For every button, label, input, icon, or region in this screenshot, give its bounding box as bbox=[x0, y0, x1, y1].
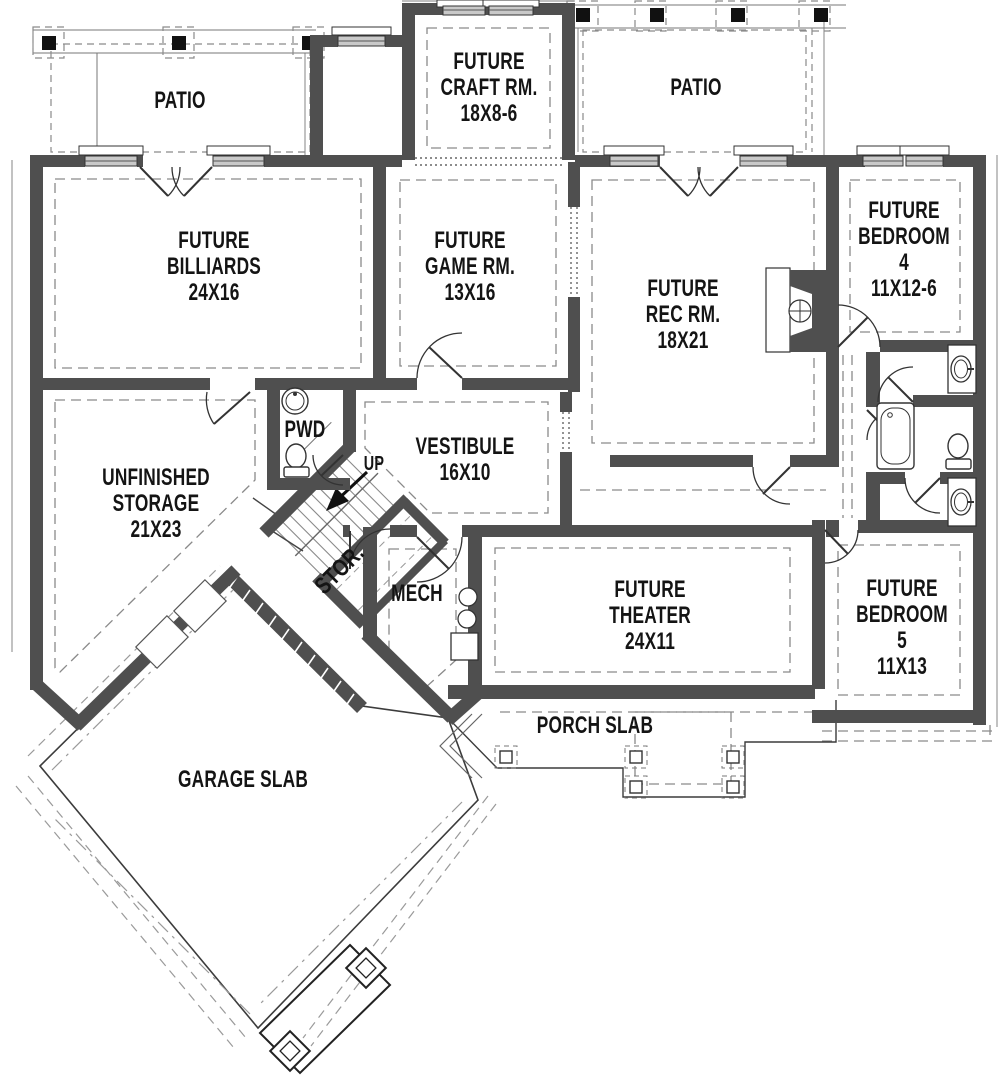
bathtub-icon bbox=[877, 403, 914, 469]
room-label-powder-room: PWD bbox=[285, 417, 326, 443]
floorplan-page: PATIO FUTURE CRAFT RM. 18X8-6 PATIO FUTU… bbox=[0, 0, 1000, 1075]
room-label-garage-slab: GARAGE SLAB bbox=[178, 767, 308, 793]
room-label-storage: UNFINISHED STORAGE 21X23 bbox=[102, 465, 210, 543]
room-label-porch-slab: PORCH SLAB bbox=[537, 713, 653, 739]
garage-slab-outline bbox=[16, 566, 496, 1073]
room-label-game-room: FUTURE GAME RM. 13X16 bbox=[425, 228, 515, 306]
room-label-mechanical: MECH bbox=[391, 581, 443, 607]
room-label-craft-room: FUTURE CRAFT RM. 18X8-6 bbox=[441, 49, 538, 127]
room-label-patio-left: PATIO bbox=[154, 88, 205, 114]
room-label-patio-right: PATIO bbox=[670, 75, 721, 101]
toilet-icon bbox=[946, 434, 971, 469]
room-label-billiards: FUTURE BILLIARDS 24X16 bbox=[167, 228, 261, 306]
hatched-wall bbox=[225, 572, 362, 708]
fireplace-icon bbox=[766, 268, 828, 352]
patio-column-icon bbox=[42, 36, 316, 50]
room-label-rec-room: FUTURE REC RM. 18X21 bbox=[646, 276, 720, 354]
porch-post-icon bbox=[495, 746, 744, 798]
patio-column-icon bbox=[576, 8, 828, 22]
room-label-bedroom-4: FUTURE BEDROOM 4 11X12-6 bbox=[858, 198, 950, 302]
room-label-theater: FUTURE THEATER 24X11 bbox=[609, 577, 691, 655]
sink-icon bbox=[282, 388, 308, 414]
room-dashed-boundaries bbox=[55, 28, 995, 784]
furnace-icon bbox=[451, 633, 478, 660]
room-label-up: UP bbox=[364, 454, 384, 474]
room-label-bedroom-5: FUTURE BEDROOM 5 11X13 bbox=[856, 576, 948, 680]
room-label-vestibule: VESTIBULE 16X10 bbox=[416, 434, 515, 486]
